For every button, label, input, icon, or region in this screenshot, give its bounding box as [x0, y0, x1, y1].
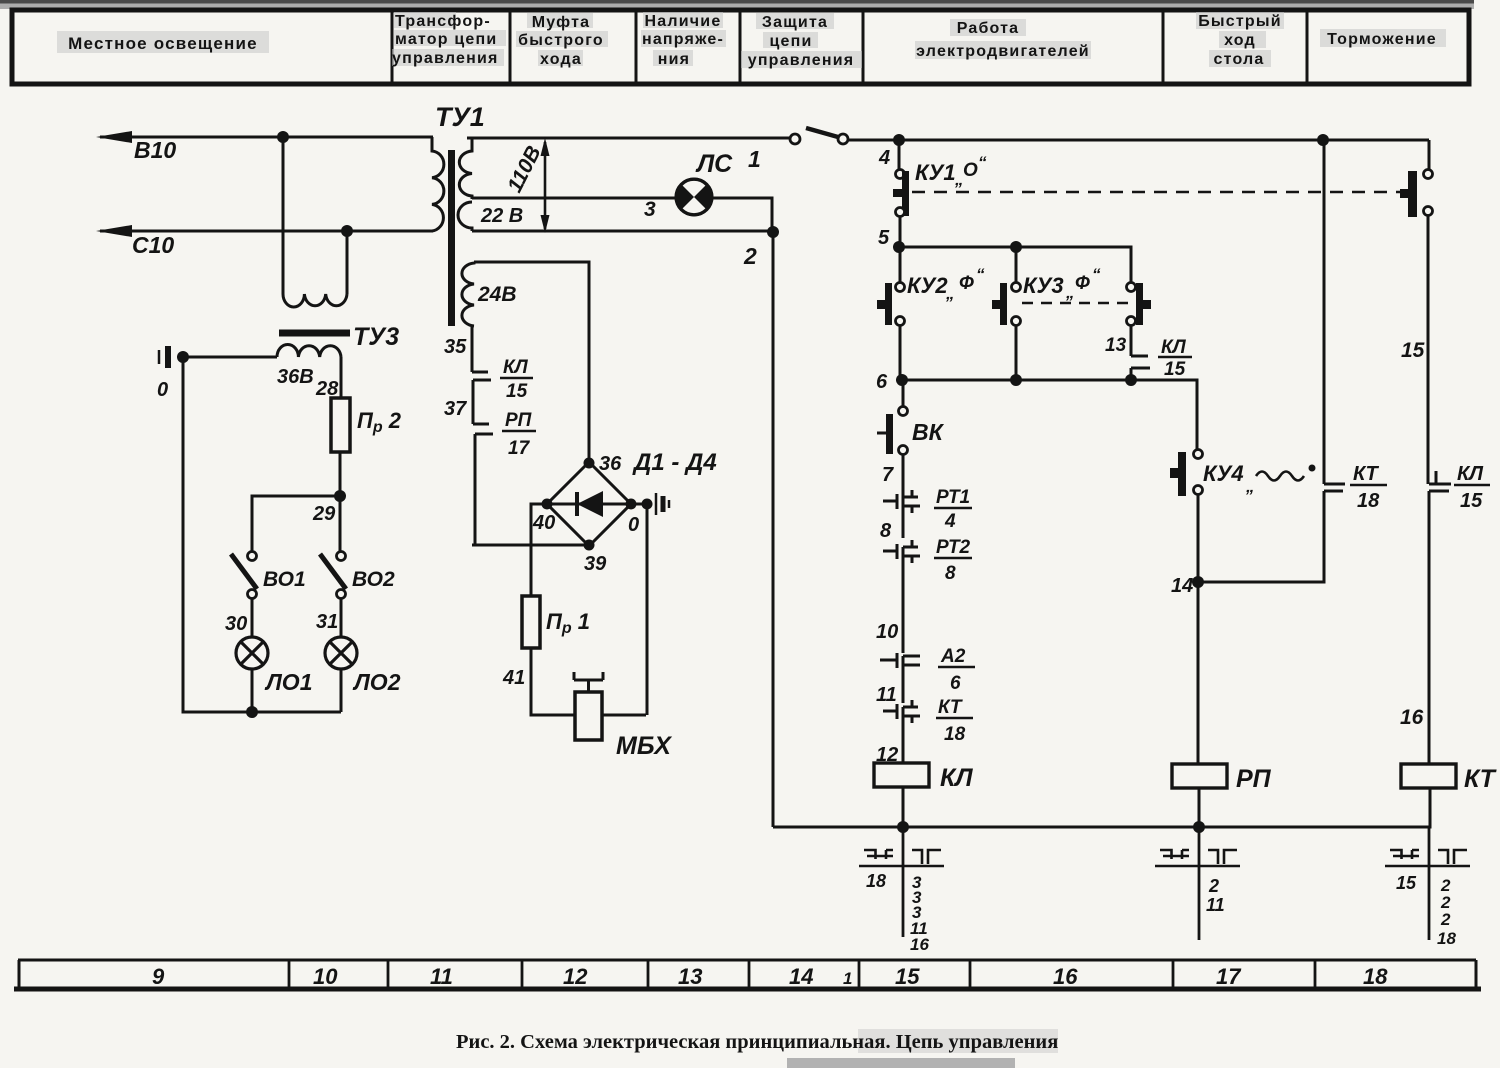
svg-text:КЛ: КЛ	[940, 764, 973, 792]
svg-text:36: 36	[599, 453, 622, 475]
svg-text:15: 15	[1396, 873, 1417, 893]
svg-text:хода: хода	[540, 51, 582, 68]
svg-text:ВО2: ВО2	[352, 568, 395, 591]
svg-text:напряже-: напряже-	[642, 31, 724, 48]
svg-text:14: 14	[1171, 575, 1193, 597]
svg-text:ТУ3: ТУ3	[353, 323, 399, 351]
svg-text:2: 2	[1208, 876, 1219, 896]
svg-text:13: 13	[678, 964, 702, 989]
svg-text:40: 40	[532, 512, 555, 534]
svg-text:КТ: КТ	[1464, 765, 1498, 793]
svg-text:Д1 - Д4: Д1 - Д4	[632, 449, 717, 476]
svg-text:12: 12	[563, 964, 588, 989]
svg-text:6: 6	[876, 371, 888, 393]
svg-text:ТУ1: ТУ1	[435, 102, 485, 132]
svg-text:„: „	[945, 284, 955, 303]
svg-text:КЛ: КЛ	[503, 357, 529, 378]
svg-text:7: 7	[882, 464, 894, 486]
svg-text:2: 2	[1440, 910, 1451, 929]
svg-text:КЛ: КЛ	[1161, 337, 1187, 358]
svg-text:КУ2: КУ2	[907, 273, 948, 298]
svg-text:18: 18	[1357, 490, 1380, 512]
svg-text:11: 11	[1206, 895, 1225, 915]
svg-text:электродвигателей: электродвигателей	[916, 43, 1090, 60]
svg-text:ВК: ВК	[912, 419, 945, 445]
svg-text:матор цепи: матор цепи	[395, 31, 497, 48]
svg-text:стола: стола	[1214, 51, 1265, 68]
svg-text:Наличие: Наличие	[645, 13, 722, 30]
svg-text:В10: В10	[134, 137, 176, 163]
svg-text:31: 31	[316, 611, 338, 633]
svg-text:1: 1	[843, 969, 852, 988]
svg-text:ЛО2: ЛО2	[352, 669, 401, 695]
svg-text:МБХ: МБХ	[616, 732, 672, 760]
svg-text:30: 30	[225, 613, 247, 635]
svg-text:О: О	[963, 160, 978, 181]
svg-text:Быстрый: Быстрый	[1198, 13, 1282, 30]
svg-text:18: 18	[944, 724, 966, 745]
svg-text:ход: ход	[1224, 32, 1256, 49]
svg-text:10: 10	[876, 621, 898, 643]
svg-text:КУ4: КУ4	[1203, 461, 1244, 486]
svg-text:“: “	[978, 153, 987, 172]
svg-text:2: 2	[743, 243, 757, 269]
svg-text:4: 4	[944, 511, 956, 532]
svg-text:управления: управления	[392, 50, 499, 67]
svg-text:РП: РП	[1236, 765, 1272, 793]
svg-text:ЛС: ЛС	[695, 150, 733, 178]
svg-text:Рис. 2. Схема электрическая пр: Рис. 2. Схема электрическая принципиальн…	[456, 1031, 1058, 1053]
svg-text:37: 37	[444, 398, 467, 420]
svg-text:КТ: КТ	[938, 697, 963, 718]
svg-text:39: 39	[584, 553, 607, 575]
svg-text:РП: РП	[505, 410, 532, 431]
svg-text:15: 15	[506, 381, 528, 402]
svg-text:3: 3	[644, 198, 656, 221]
svg-text:Трансфор-: Трансфор-	[395, 13, 491, 30]
svg-text:Ф: Ф	[959, 273, 974, 294]
svg-text:17: 17	[1216, 964, 1242, 989]
svg-text:ВО1: ВО1	[263, 568, 306, 591]
svg-text:“: “	[1092, 265, 1101, 284]
svg-text:РТ1: РТ1	[936, 487, 970, 508]
svg-text:КЛ: КЛ	[1457, 463, 1484, 485]
svg-text:18: 18	[1437, 929, 1456, 948]
svg-text:ЛО1: ЛО1	[264, 669, 312, 695]
svg-text:РТ2: РТ2	[936, 537, 971, 558]
svg-text:Торможение: Торможение	[1327, 31, 1437, 48]
svg-text:КУ3: КУ3	[1023, 273, 1064, 298]
svg-text:10: 10	[313, 964, 338, 989]
svg-text:17: 17	[508, 438, 531, 459]
svg-text:6: 6	[950, 673, 961, 694]
svg-text:4: 4	[878, 147, 890, 169]
svg-text:Работа: Работа	[957, 20, 1020, 37]
svg-text:15: 15	[1164, 359, 1186, 380]
svg-text:15: 15	[1460, 490, 1483, 512]
svg-text:16: 16	[1400, 706, 1424, 729]
svg-text:быстрого: быстрого	[518, 32, 604, 49]
svg-text:15: 15	[1401, 339, 1425, 362]
svg-text:ния: ния	[658, 51, 690, 68]
svg-text:управления: управления	[748, 52, 855, 69]
svg-text:0: 0	[157, 379, 168, 401]
svg-text:15: 15	[895, 964, 920, 989]
svg-text:1: 1	[748, 146, 761, 172]
svg-text:цепи: цепи	[769, 33, 812, 50]
svg-text:36В: 36В	[277, 366, 314, 388]
svg-text:А2: А2	[940, 646, 966, 667]
svg-text:13: 13	[1105, 335, 1127, 356]
svg-text:„: „	[1065, 283, 1075, 302]
svg-text:35: 35	[444, 336, 467, 358]
svg-text:Ф: Ф	[1075, 273, 1090, 294]
svg-text:41: 41	[502, 667, 525, 689]
svg-text:Защита: Защита	[762, 14, 828, 31]
svg-text:29: 29	[312, 503, 336, 525]
svg-text:16: 16	[910, 935, 929, 954]
svg-text:8: 8	[945, 563, 956, 584]
svg-text:КУ1: КУ1	[915, 160, 956, 185]
svg-text:Местное освещение: Местное освещение	[68, 34, 258, 53]
svg-text:14: 14	[789, 964, 813, 989]
svg-text:0: 0	[628, 514, 639, 536]
svg-text:11: 11	[876, 684, 897, 706]
svg-text:11: 11	[430, 964, 453, 989]
svg-text:16: 16	[1053, 964, 1078, 989]
svg-text:9: 9	[152, 964, 165, 989]
svg-text:22 В: 22 В	[480, 205, 523, 227]
svg-text:КТ: КТ	[1353, 463, 1380, 485]
svg-text:8: 8	[880, 520, 892, 542]
svg-text:С10: С10	[132, 232, 174, 258]
svg-text:Муфта: Муфта	[532, 14, 591, 31]
svg-text:18: 18	[1363, 964, 1388, 989]
svg-text:5: 5	[878, 227, 890, 249]
svg-text:“: “	[976, 265, 985, 284]
svg-text:„: „	[1245, 477, 1255, 496]
svg-text:18: 18	[866, 871, 886, 891]
svg-text:24В: 24В	[477, 283, 517, 306]
